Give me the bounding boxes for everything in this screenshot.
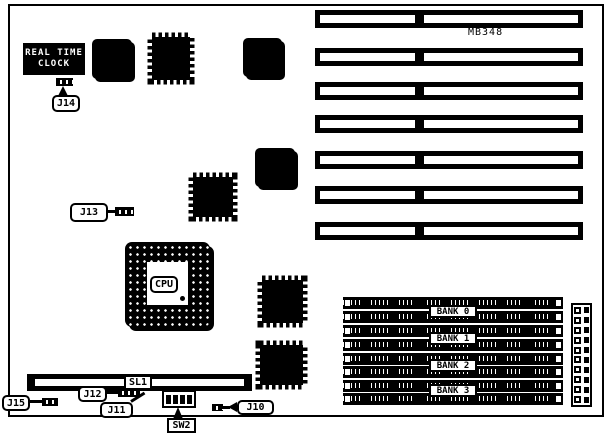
- cpu-label: CPU: [150, 276, 178, 293]
- qfp-chip-1: [147, 32, 195, 85]
- expansion-slot-5: [315, 151, 583, 169]
- callout-j10: J10: [237, 400, 274, 415]
- callout-sw2: SW2: [167, 418, 196, 433]
- smd-chip-2: [243, 38, 282, 77]
- callout-j14: J14: [52, 95, 80, 112]
- model-label: MB348: [468, 27, 503, 38]
- expansion-slot-6: [315, 186, 583, 204]
- sw2-dip-switch: [162, 390, 196, 408]
- callout-j13: J13: [70, 203, 108, 222]
- qfp-chip-3: [257, 275, 308, 328]
- callout-j12-label: J12: [83, 389, 101, 400]
- rtc-label-line1: REAL TIME: [25, 48, 83, 59]
- jumper-j14: [56, 78, 73, 86]
- callout-pointer-j15: [29, 400, 43, 403]
- rtc-label-line2: CLOCK: [38, 59, 70, 70]
- callout-j14-label: J14: [57, 98, 75, 109]
- callout-j10-label: J10: [246, 402, 264, 413]
- jumper-j15: [42, 398, 58, 406]
- qfp-chip-4: [255, 340, 308, 390]
- callout-j12: J12: [78, 386, 107, 402]
- expansion-slot-4: [315, 115, 583, 133]
- qfp-chip-2: [188, 172, 238, 222]
- bank-label-1: BANK 1: [429, 332, 477, 345]
- cpu-pin1-dot: [180, 296, 185, 301]
- callout-pointer-j12: [106, 391, 119, 394]
- expansion-slot-3: [315, 82, 583, 100]
- bank-label-3: BANK 3: [429, 384, 477, 397]
- cpu-socket: CPU: [125, 242, 210, 327]
- callout-j15-label: J15: [7, 398, 25, 409]
- smd-chip-1: [92, 39, 132, 79]
- callout-j11-label: J11: [107, 405, 125, 416]
- motherboard-diagram: REAL TIME CLOCK J14 J13 CPU: [0, 0, 609, 438]
- bank-label-0: BANK 0: [429, 305, 477, 318]
- cpu-socket-center: CPU: [147, 262, 188, 305]
- jumper-j13: [115, 207, 134, 216]
- expansion-slot-2: [315, 48, 583, 66]
- callout-j11: J11: [100, 402, 133, 418]
- callout-j15: J15: [2, 395, 30, 411]
- rtc-chip: REAL TIME CLOCK: [23, 43, 85, 75]
- expansion-slot-7: [315, 222, 583, 240]
- sl1-label: SL1: [124, 375, 152, 390]
- smd-chip-3: [255, 148, 295, 187]
- callout-pointer-j10: [228, 402, 237, 412]
- callout-j13-label: J13: [80, 207, 98, 218]
- callout-sw2-label: SW2: [172, 420, 190, 431]
- power-connector: [571, 303, 592, 407]
- callout-pointer-j13: [107, 210, 117, 213]
- bank-label-2: BANK 2: [429, 359, 477, 372]
- expansion-slot-1: [315, 10, 583, 28]
